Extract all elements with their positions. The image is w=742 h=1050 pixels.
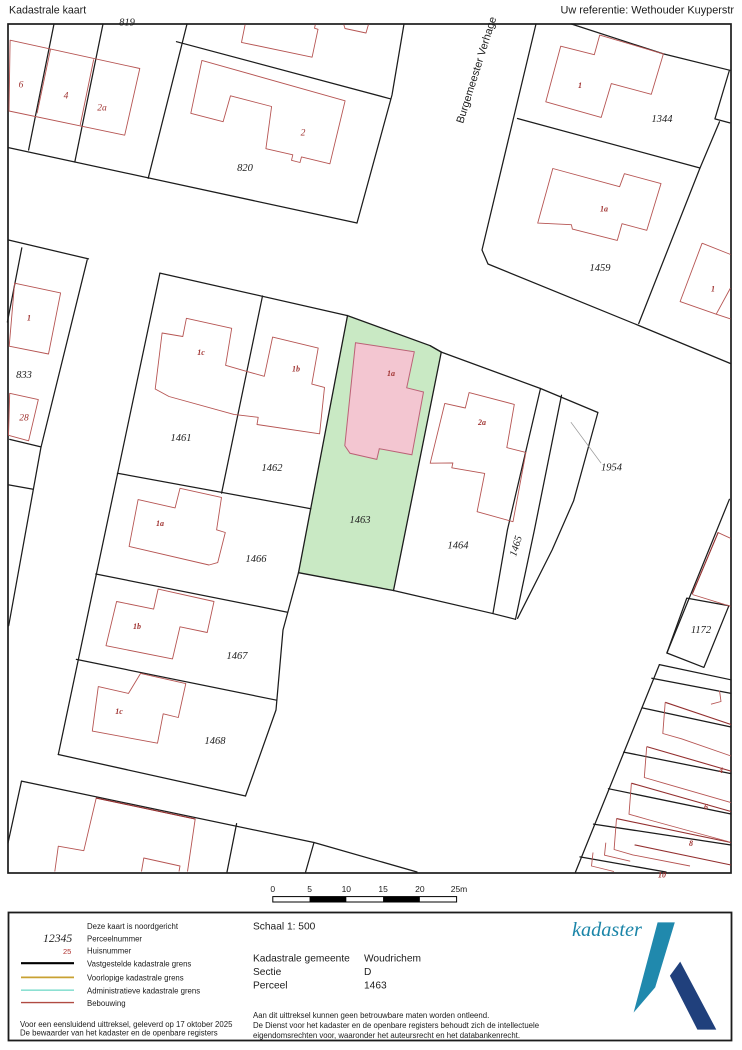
- svg-text:D: D: [364, 967, 371, 978]
- svg-text:833: 833: [16, 370, 32, 381]
- svg-text:Perceelnummer: Perceelnummer: [87, 935, 142, 944]
- svg-text:6: 6: [704, 803, 708, 812]
- svg-text:1172: 1172: [691, 625, 712, 636]
- svg-text:1463: 1463: [350, 515, 371, 526]
- svg-text:De bewaarder van het kadaster: De bewaarder van het kadaster en de open…: [20, 1029, 218, 1038]
- svg-text:6: 6: [19, 81, 24, 91]
- svg-text:1: 1: [711, 285, 715, 294]
- svg-text:1344: 1344: [652, 114, 674, 125]
- svg-text:1467: 1467: [227, 651, 249, 662]
- svg-text:12345: 12345: [43, 932, 72, 945]
- svg-text:1: 1: [578, 81, 582, 90]
- svg-text:819: 819: [119, 18, 136, 29]
- svg-text:0: 0: [270, 884, 275, 894]
- svg-text:28: 28: [19, 414, 29, 424]
- svg-text:Deze kaart is noordgericht: Deze kaart is noordgericht: [87, 922, 179, 931]
- svg-text:1463: 1463: [364, 981, 387, 992]
- svg-text:10: 10: [342, 884, 352, 894]
- svg-text:15: 15: [378, 884, 388, 894]
- svg-text:Perceel: Perceel: [253, 981, 288, 992]
- svg-text:1464: 1464: [448, 541, 470, 552]
- svg-text:2a: 2a: [97, 104, 107, 114]
- svg-text:1a: 1a: [156, 519, 164, 528]
- svg-text:Huisnummer: Huisnummer: [87, 947, 132, 956]
- svg-text:Uw referentie: Wethouder Kuype: Uw referentie: Wethouder Kuyperstr: [560, 5, 734, 17]
- svg-text:1a: 1a: [600, 205, 608, 214]
- svg-text:Aan dit uittreksel kunnen geen: Aan dit uittreksel kunnen geen betrouwba…: [253, 1011, 489, 1020]
- svg-text:1a: 1a: [387, 369, 395, 378]
- svg-text:Woudrichem: Woudrichem: [364, 954, 421, 965]
- svg-text:1468: 1468: [205, 736, 227, 747]
- svg-text:1954: 1954: [601, 463, 623, 474]
- svg-text:kadaster: kadaster: [572, 919, 642, 941]
- svg-text:Administratieve kadastrale gre: Administratieve kadastrale grens: [87, 987, 200, 996]
- svg-text:Vastgestelde kadastrale grens: Vastgestelde kadastrale grens: [87, 960, 191, 969]
- svg-text:5: 5: [307, 884, 312, 894]
- svg-text:Schaal 1: 500: Schaal 1: 500: [253, 922, 316, 933]
- svg-text:De Dienst voor het kadaster en: De Dienst voor het kadaster en de openba…: [253, 1021, 539, 1030]
- svg-text:1466: 1466: [246, 554, 268, 565]
- svg-text:2: 2: [301, 129, 306, 139]
- svg-text:4: 4: [718, 766, 723, 775]
- svg-text:Sectie: Sectie: [253, 967, 282, 978]
- svg-text:25: 25: [63, 947, 71, 956]
- svg-text:1: 1: [27, 314, 31, 323]
- svg-text:eigendomsrechten voor, waarond: eigendomsrechten voor, waaronder het aut…: [253, 1031, 520, 1040]
- svg-text:4: 4: [64, 92, 69, 102]
- svg-text:20: 20: [415, 884, 425, 894]
- svg-text:Voorlopige kadastrale grens: Voorlopige kadastrale grens: [87, 974, 184, 983]
- svg-text:25m: 25m: [451, 884, 468, 894]
- svg-text:1461: 1461: [171, 433, 192, 444]
- svg-text:1462: 1462: [262, 463, 284, 474]
- svg-text:Kadastrale gemeente: Kadastrale gemeente: [253, 954, 350, 965]
- svg-text:10: 10: [658, 871, 666, 880]
- svg-text:1b: 1b: [133, 622, 141, 631]
- svg-text:1465: 1465: [508, 535, 525, 558]
- svg-text:1b: 1b: [292, 365, 300, 374]
- svg-text:Bebouwing: Bebouwing: [87, 999, 126, 1008]
- svg-text:1c: 1c: [197, 348, 205, 357]
- svg-text:8: 8: [689, 839, 693, 848]
- svg-text:820: 820: [237, 163, 254, 174]
- svg-text:1459: 1459: [590, 263, 612, 274]
- svg-text:1c: 1c: [115, 707, 123, 716]
- svg-text:Kadastrale kaart: Kadastrale kaart: [9, 5, 86, 17]
- svg-text:2a: 2a: [477, 418, 486, 427]
- svg-text:Burgemeester Verhage: Burgemeester Verhage: [454, 15, 499, 125]
